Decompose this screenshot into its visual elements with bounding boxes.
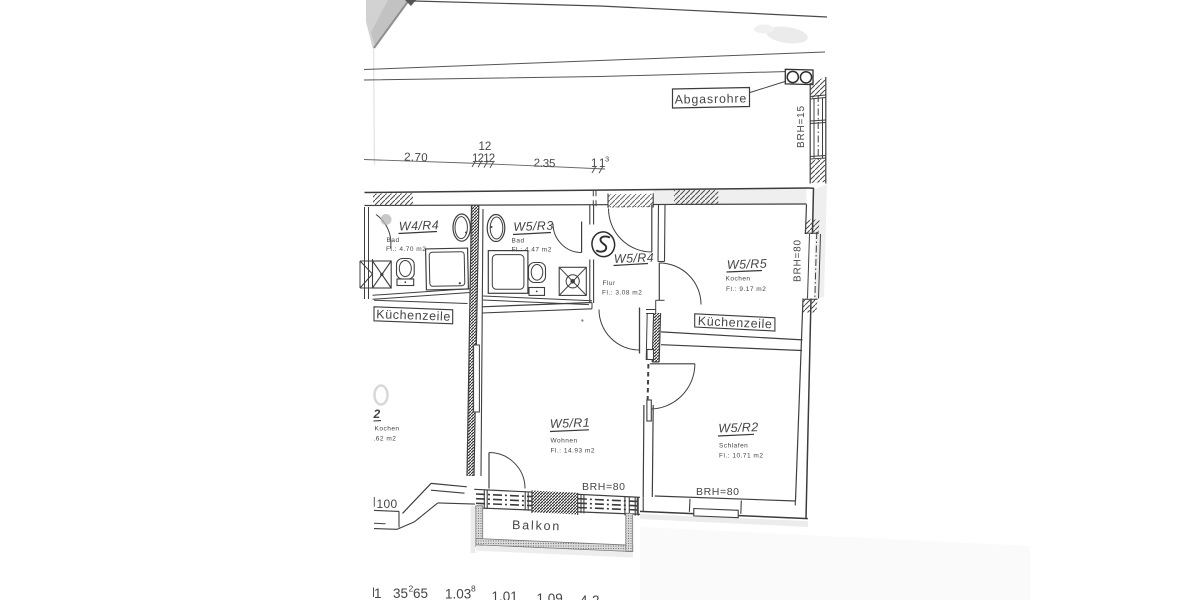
svg-text:12: 12 xyxy=(479,141,492,153)
svg-text:1.09: 1.09 xyxy=(537,591,563,600)
svg-text:Bad: Bad xyxy=(387,237,400,244)
svg-text:100: 100 xyxy=(377,497,398,511)
svg-text:Kochen: Kochen xyxy=(726,276,751,283)
svg-text:Fl.: 4.70 m2: Fl.: 4.70 m2 xyxy=(386,246,426,253)
svg-text:W5/R2: W5/R2 xyxy=(718,420,759,435)
svg-text:Abgasrohre: Abgasrohre xyxy=(675,91,748,106)
svg-text:BRH=80: BRH=80 xyxy=(696,486,740,498)
svg-text:2: 2 xyxy=(373,407,381,421)
svg-text:Bad: Bad xyxy=(512,238,525,245)
svg-text:2.35: 2.35 xyxy=(533,158,555,171)
svg-text:2: 2 xyxy=(592,593,600,600)
svg-text:3: 3 xyxy=(605,155,609,164)
svg-text:Fl.: 10.71 m2: Fl.: 10.71 m2 xyxy=(719,453,763,460)
svg-text:Fl.: 14.93 m2: Fl.: 14.93 m2 xyxy=(551,448,595,455)
svg-text:W5/R5: W5/R5 xyxy=(727,257,768,272)
svg-text:Fl.: 3.08 m2: Fl.: 3.08 m2 xyxy=(602,290,642,297)
svg-text:35: 35 xyxy=(393,586,408,600)
svg-text:BRH=15: BRH=15 xyxy=(796,105,807,148)
svg-text:1.01: 1.01 xyxy=(492,589,518,600)
svg-text:1212: 1212 xyxy=(472,153,495,165)
svg-text:65: 65 xyxy=(413,586,428,600)
svg-text:1.03: 1.03 xyxy=(445,587,471,600)
svg-text:2.70: 2.70 xyxy=(404,152,428,165)
svg-text:4: 4 xyxy=(580,593,588,600)
svg-text:W5/R4: W5/R4 xyxy=(614,251,655,266)
svg-text:BRH=80: BRH=80 xyxy=(582,481,626,493)
svg-text:W5/R1: W5/R1 xyxy=(550,416,591,431)
svg-text:Fl.: 4.47 m2: Fl.: 4.47 m2 xyxy=(512,247,552,254)
svg-text:8: 8 xyxy=(471,584,476,594)
svg-text:.62 m2: .62 m2 xyxy=(374,436,397,443)
svg-text:Schlafen: Schlafen xyxy=(719,443,748,450)
svg-text:W5/R3: W5/R3 xyxy=(513,219,554,234)
svg-text:Balkon: Balkon xyxy=(512,518,561,533)
svg-text:Wohnen: Wohnen xyxy=(551,438,578,445)
svg-text:,: , xyxy=(389,593,392,600)
svg-text:,: , xyxy=(433,593,436,600)
svg-text:Kochen: Kochen xyxy=(375,426,400,433)
svg-text:Flur: Flur xyxy=(603,280,617,287)
svg-text:BRH=80: BRH=80 xyxy=(793,239,804,282)
svg-text:1: 1 xyxy=(374,586,382,600)
svg-text:Fl.: 9.17 m2: Fl.: 9.17 m2 xyxy=(726,286,766,293)
svg-text:Küchenzeile: Küchenzeile xyxy=(376,307,451,324)
